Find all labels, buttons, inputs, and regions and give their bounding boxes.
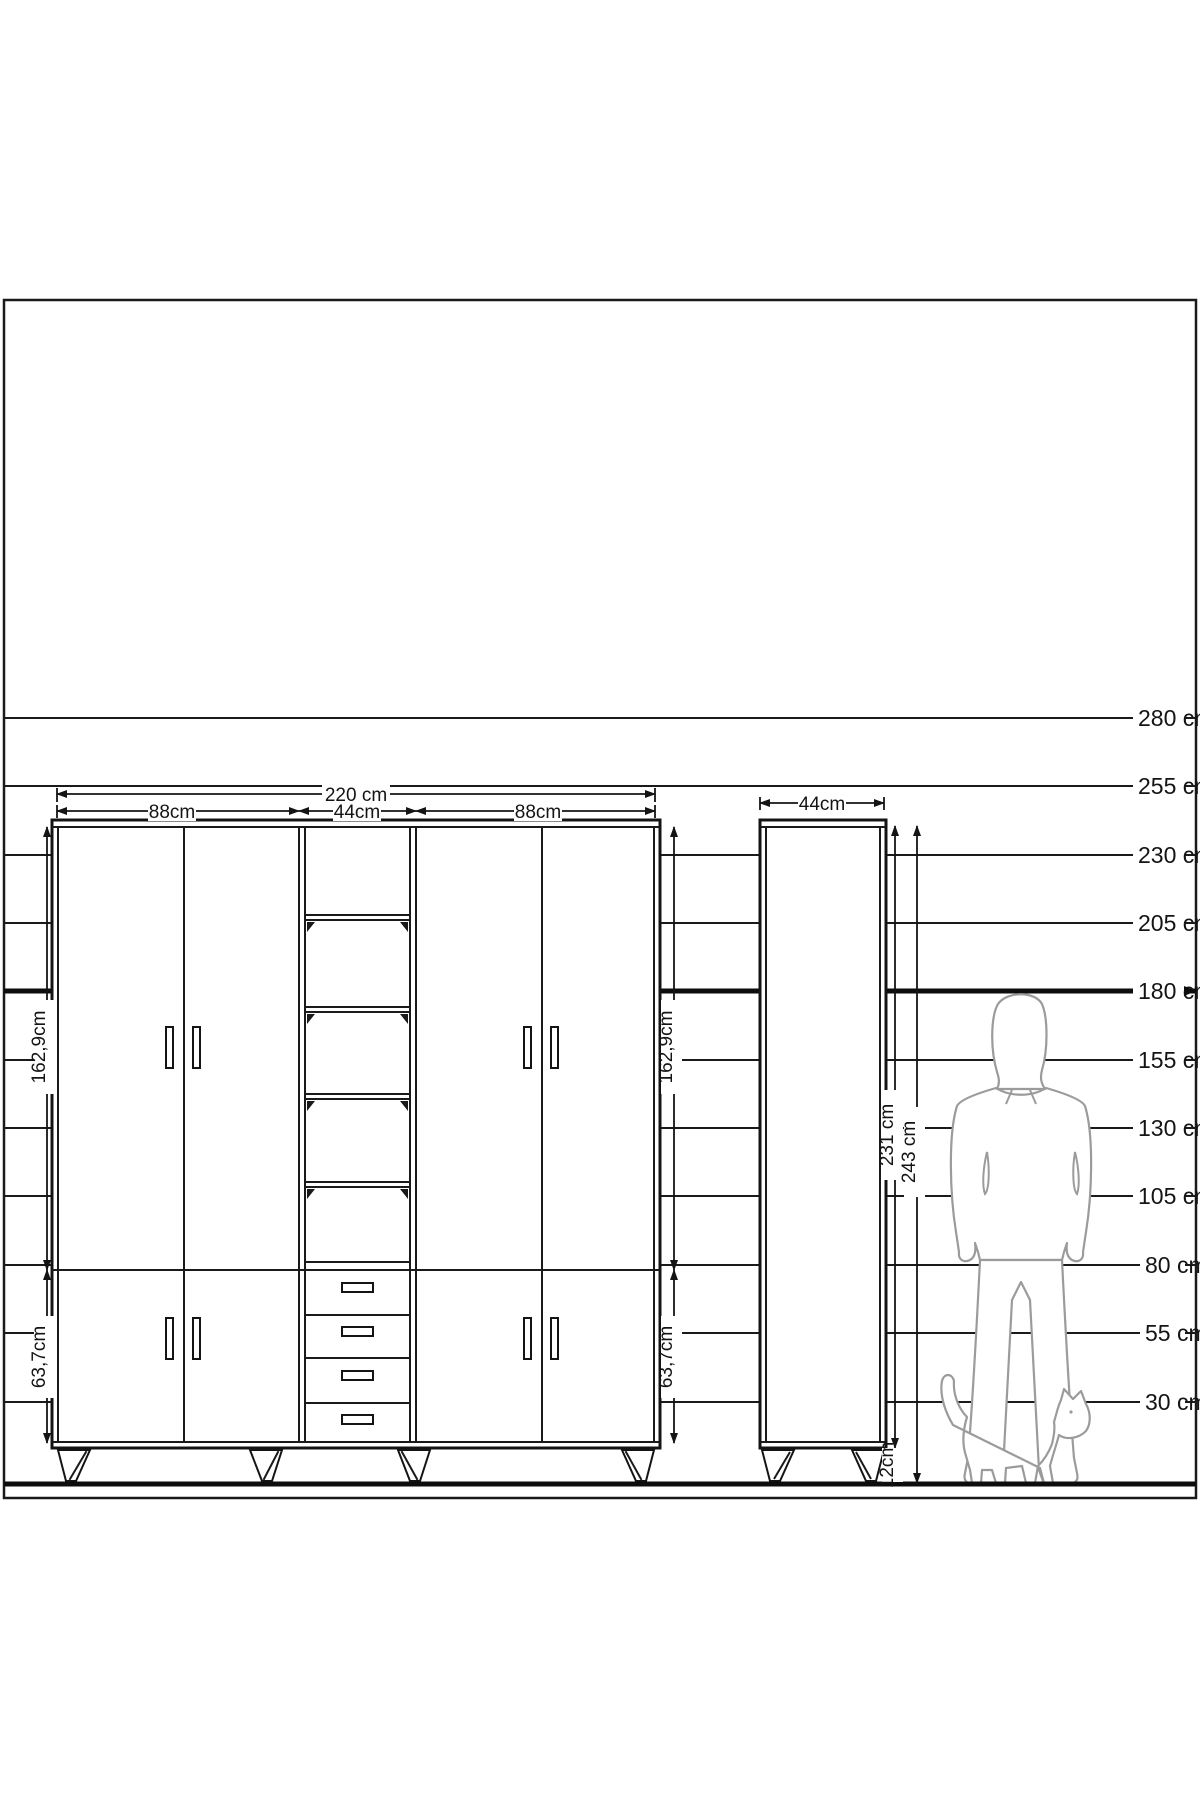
main-cabinet <box>52 820 660 1481</box>
dimension-label-tall-total-height: 243 cm <box>899 1121 920 1183</box>
cat-eye <box>1069 1410 1072 1413</box>
height-scale-label: 280 cm <box>1138 705 1200 731</box>
dimension-label-section-right: 88cm <box>515 802 561 823</box>
height-scale-label: 55 cm <box>1145 1320 1200 1346</box>
tall-cabinet <box>760 820 886 1481</box>
height-scale-label: 155 cm <box>1138 1047 1200 1073</box>
height-scale-label: 30 cm <box>1145 1389 1200 1415</box>
technical-drawing-page: 220 cm 88cm 44cm 88cm 162,9cm 63,7cm 162… <box>0 0 1200 1800</box>
drawer-handle <box>342 1371 373 1380</box>
drawer-handle <box>342 1415 373 1424</box>
height-scale-label: 255 cm <box>1138 773 1200 799</box>
dimension-label-section-middle: 44cm <box>334 802 380 823</box>
height-scale-label: 230 cm <box>1138 842 1200 868</box>
dimension-label-section-left: 88cm <box>149 802 195 823</box>
dimension-label-lower-height-left: 63,7cm <box>29 1326 50 1388</box>
dimension-label-tall-width: 44cm <box>799 794 845 815</box>
height-scale-label: 105 cm <box>1138 1183 1200 1209</box>
height-scale-label: 80 cm <box>1145 1252 1200 1278</box>
drawer-handle <box>342 1283 373 1292</box>
dimension-label-lower-height-right: 63,7cm <box>656 1326 677 1388</box>
dimension-label-upper-height-left: 162,9cm <box>29 1011 50 1084</box>
dimension-label-upper-height-right: 162,9cm <box>656 1011 677 1084</box>
wardrobe-dimension-diagram: 220 cm 88cm 44cm 88cm 162,9cm 63,7cm 162… <box>0 0 1200 1800</box>
height-scale-label: 130 cm <box>1138 1115 1200 1141</box>
dimension-label-tall-leg-height: 12cm <box>877 1442 898 1488</box>
drawer-handle <box>342 1327 373 1336</box>
height-scale-label: 205 cm <box>1138 910 1200 936</box>
dimension-label-tall-body-height: 231 cm <box>877 1104 898 1166</box>
